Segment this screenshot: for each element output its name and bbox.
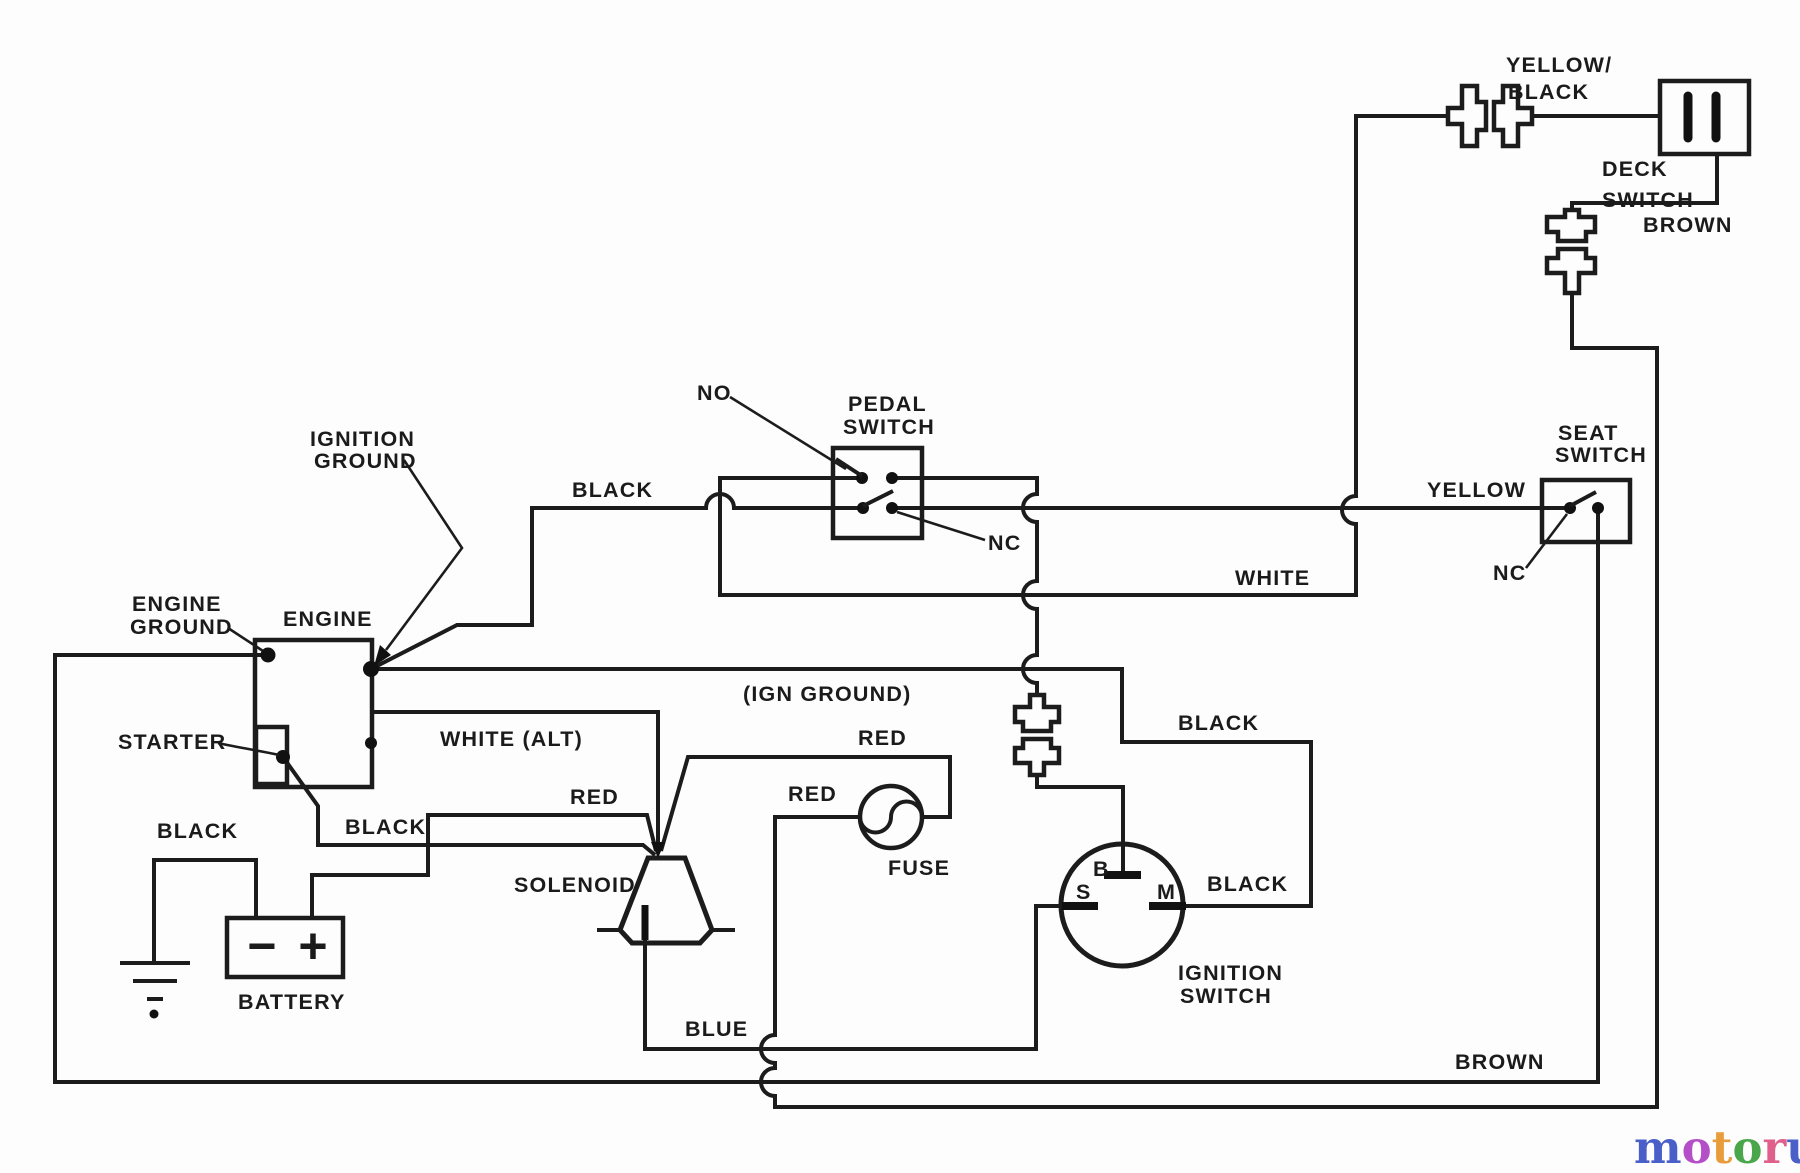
logo-letter: o: [1732, 1121, 1762, 1173]
label-deck-switch-1: DECK: [1602, 157, 1668, 181]
pedal-switch-symbol: [833, 448, 922, 538]
battery-minus-symbol: −: [247, 918, 276, 974]
label-engine-ground-2: GROUND: [130, 615, 233, 639]
wire-pedal-to-b-terminal: [892, 478, 1037, 695]
starter-terminal-dot: [276, 750, 290, 764]
label-no: NO: [697, 381, 732, 405]
pedal-no-arm: [836, 459, 862, 476]
label-solenoid: SOLENOID: [514, 873, 636, 897]
fuse-symbol: [860, 786, 922, 848]
engine-box: [255, 640, 372, 787]
label-ignition-ground-2: GROUND: [314, 449, 417, 473]
label-brown-bottom: BROWN: [1455, 1050, 1545, 1074]
label-red-fuse-left: RED: [788, 782, 837, 806]
label-black-starter: BLACK: [345, 815, 426, 839]
label-nc-pedal: NC: [988, 531, 1021, 555]
logo-letter: t: [1712, 1121, 1733, 1173]
label-starter: STARTER: [118, 730, 226, 754]
label-ign-ground-inline: (IGN GROUND): [743, 682, 911, 706]
label-ignition-ground-1: IGNITION: [310, 427, 415, 451]
label-engine-ground-1: ENGINE: [132, 592, 222, 616]
label-yellow-black-1: YELLOW/: [1506, 53, 1612, 77]
ground-symbol: [120, 963, 190, 1019]
label-black-magneto-upper: BLACK: [1178, 711, 1259, 735]
battery-plus-symbol: +: [298, 918, 327, 974]
label-white: WHITE: [1235, 566, 1310, 590]
connector-pair-ignition: [1015, 695, 1059, 775]
label-terminal-s: S: [1076, 880, 1092, 904]
label-seat-switch-1: SEAT: [1558, 421, 1619, 445]
wiring-diagram: YELLOW/ BLACK DECK SWITCH BROWN NO PEDAL…: [0, 0, 1800, 1173]
logo-letter: m: [1634, 1121, 1682, 1173]
label-terminal-b: B: [1093, 857, 1110, 881]
label-black-magneto: BLACK: [1207, 872, 1288, 896]
label-pedal-switch-2: SWITCH: [843, 415, 935, 439]
label-black-pedal: BLACK: [572, 478, 653, 502]
logo-letter: o: [1682, 1121, 1712, 1173]
label-blue: BLUE: [685, 1017, 748, 1041]
label-white-alt: WHITE (ALT): [440, 727, 583, 751]
deck-switch-symbol: [1660, 81, 1749, 154]
label-red-battery: RED: [570, 785, 619, 809]
label-yellow: YELLOW: [1427, 478, 1526, 502]
logo-letter: r: [1762, 1121, 1786, 1173]
wire-black-battery-ground: [154, 860, 256, 963]
label-deck-switch-2: SWITCH: [1602, 188, 1694, 212]
label-nc-seat: NC: [1493, 561, 1526, 585]
engine-terminal-dot: [365, 737, 377, 749]
logo-letter: u: [1786, 1121, 1800, 1173]
logo-word: motoruf: [1634, 1121, 1800, 1173]
label-terminal-m: M: [1157, 880, 1176, 904]
starter-pointer-line: [218, 743, 279, 755]
label-engine: ENGINE: [283, 607, 373, 631]
label-brown-top: BROWN: [1643, 213, 1733, 237]
label-red-top: RED: [858, 726, 907, 750]
motoruf-logo: motoruf”.de: [1634, 1116, 1800, 1173]
ignition-ground-pointer: [374, 460, 462, 666]
no-pointer-line: [730, 397, 846, 469]
label-seat-switch-2: SWITCH: [1555, 443, 1647, 467]
label-ignition-switch-1: IGNITION: [1178, 961, 1283, 985]
wire-connectorB-to-b-terminal: [1037, 775, 1123, 871]
label-yellow-black-2: BLACK: [1508, 80, 1589, 104]
label-pedal-switch-1: PEDAL: [848, 392, 927, 416]
diagram-svg: YELLOW/ BLACK DECK SWITCH BROWN NO PEDAL…: [0, 0, 1800, 1173]
connector-pair-brown: [1547, 210, 1595, 293]
label-battery: BATTERY: [238, 990, 346, 1014]
seat-nc-arm: [1570, 492, 1596, 506]
label-black-battery: BLACK: [157, 819, 238, 843]
label-ignition-switch-2: SWITCH: [1180, 984, 1272, 1008]
seat-switch-symbol: [1542, 480, 1630, 542]
wire-white-to-deck: [720, 116, 1448, 595]
label-fuse: FUSE: [888, 856, 950, 880]
